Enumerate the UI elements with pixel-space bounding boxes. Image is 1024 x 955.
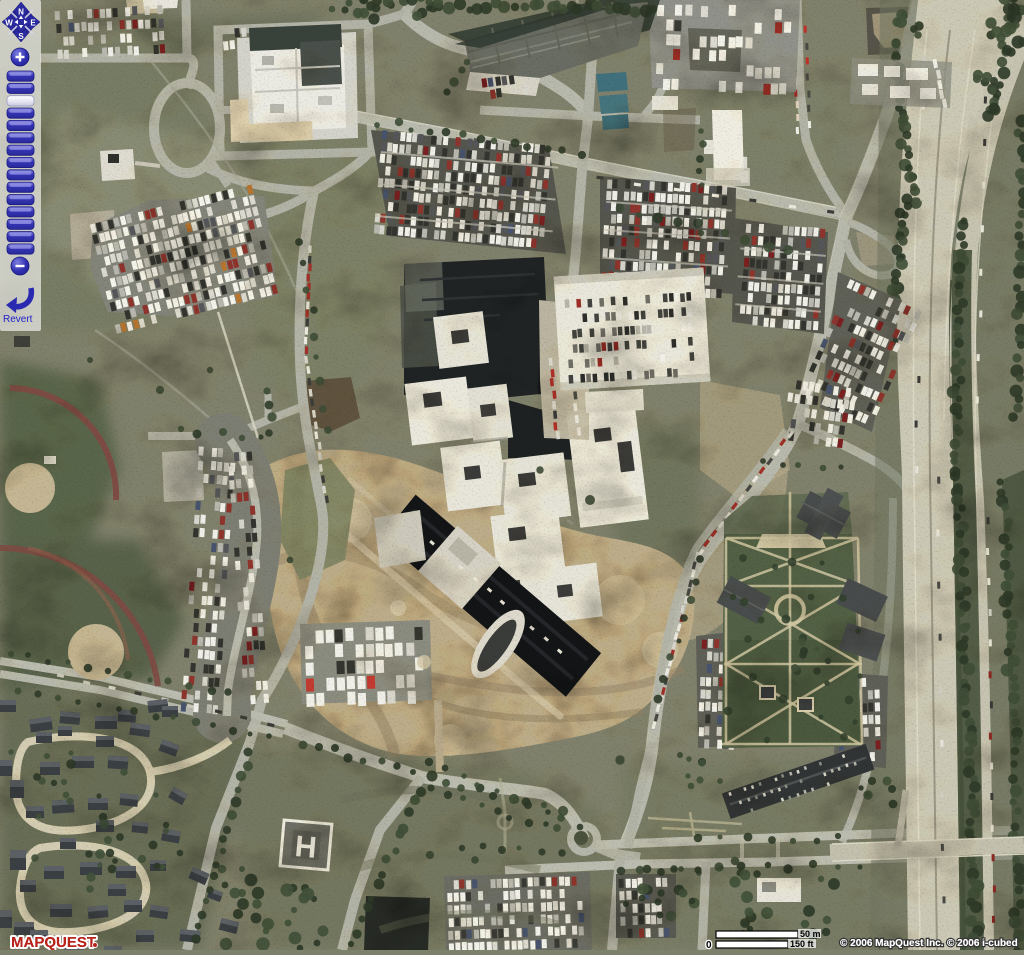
svg-text:© 2006 i-cubed: © 2006 i-cubed (947, 938, 1018, 949)
svg-text:0: 0 (706, 940, 712, 950)
svg-text:50 m: 50 m (800, 929, 821, 939)
svg-text:Revert: Revert (3, 314, 33, 325)
svg-text:E: E (30, 19, 36, 28)
svg-text:W: W (5, 19, 13, 28)
svg-text:150 ft: 150 ft (790, 939, 814, 949)
svg-text:MAPQUEST: MAPQUEST (11, 934, 96, 950)
svg-text:N: N (18, 8, 24, 17)
svg-text:S: S (18, 32, 24, 41)
svg-text:© 2006 MapQuest Inc.: © 2006 MapQuest Inc. (840, 938, 944, 949)
svg-text:H: H (294, 830, 318, 865)
